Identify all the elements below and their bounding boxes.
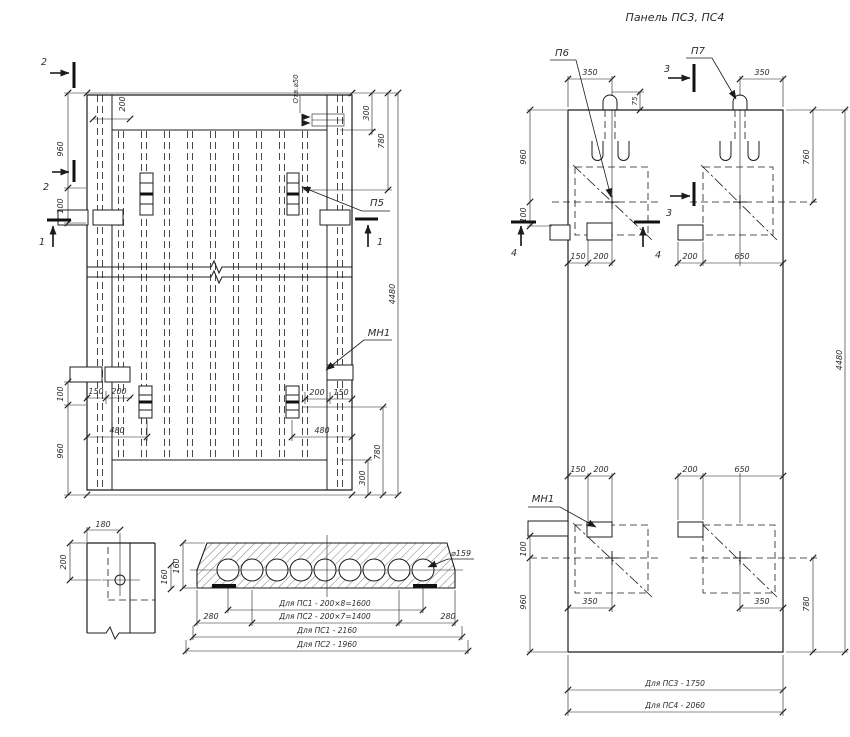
plan-view: 2 2 1 1 Отв.⌀50 П5 МН1 200 960 100 300 7… bbox=[39, 57, 401, 498]
section-mark-1-right: 1 bbox=[377, 237, 383, 248]
dim-200-top-right: 200 bbox=[682, 252, 697, 261]
plan-break-lines bbox=[87, 261, 352, 283]
plan-dimensions bbox=[64, 90, 401, 498]
dim-200-bottom-left: 200 bbox=[593, 465, 608, 474]
dim-350-bottom-right: 350 bbox=[754, 597, 769, 606]
hole-callout: Отв.⌀50 bbox=[292, 74, 300, 104]
drawing-canvas: 2 2 1 1 Отв.⌀50 П5 МН1 200 960 100 300 7… bbox=[0, 0, 850, 737]
dim-row-ps1-voids: Для ПС1 - 200×8=1600 bbox=[278, 599, 371, 608]
dim-row-ps1-length: Для ПС1 - 2160 bbox=[296, 626, 357, 635]
dim-780-top-right: 780 bbox=[377, 133, 386, 148]
section-mark-2-top: 2 bbox=[41, 57, 47, 68]
bearing-pad-left bbox=[212, 584, 236, 588]
callout-p5: П5 bbox=[370, 198, 384, 209]
dim-150-bottom-left: 150 bbox=[570, 465, 585, 474]
bearing-pad-right bbox=[413, 584, 437, 588]
dim-200-bottom-right: 200 bbox=[682, 465, 697, 474]
section-mark-4-left: 4 bbox=[511, 248, 517, 259]
callout-p7: П7 bbox=[691, 46, 706, 57]
dim-200-bottom-left: 200 bbox=[111, 387, 126, 396]
corner-outline bbox=[87, 533, 155, 639]
void-diameter-label: ⌀159 bbox=[451, 549, 471, 558]
anchor-zones bbox=[530, 165, 817, 597]
lifting-loops bbox=[592, 95, 759, 161]
callout-p6: П6 bbox=[555, 48, 569, 59]
dim-960-top-left-col: 960 bbox=[519, 149, 528, 164]
dim-350-bottom-left: 350 bbox=[582, 597, 597, 606]
dim-180-corner: 180 bbox=[95, 520, 110, 529]
dim-280-right: 280 bbox=[440, 612, 455, 621]
dim-650-top-right: 650 bbox=[734, 252, 749, 261]
drawing-title: Панель ПС3, ПС4 bbox=[626, 11, 725, 24]
elevation-plates bbox=[528, 223, 703, 537]
dim-350-top-right: 350 bbox=[754, 68, 769, 77]
section-mark-2-side: 2 bbox=[43, 182, 49, 193]
dim-960-bottom-left-col: 960 bbox=[519, 594, 528, 609]
dim-4480-plan: 4480 bbox=[388, 284, 397, 304]
dim-4480-elevation: 4480 bbox=[835, 350, 844, 370]
plan-anchor-inserts bbox=[139, 173, 299, 418]
dim-200-top-left: 200 bbox=[593, 252, 608, 261]
dim-280-left: 280 bbox=[203, 612, 218, 621]
dim-160-section: 160 bbox=[172, 558, 181, 573]
corner-section-view: 180 200 160 bbox=[59, 520, 174, 639]
dim-960-bottom-left-col: 960 bbox=[56, 443, 65, 458]
elevation-view: Панель ПС3, ПС4 bbox=[511, 11, 848, 716]
section-mark-3-top: 3 bbox=[664, 64, 670, 75]
dim-200-bottom-right: 200 bbox=[309, 388, 324, 397]
dim-200-top: 200 bbox=[118, 96, 127, 111]
dim-75-loop: 75 bbox=[631, 96, 639, 105]
dim-150-top-left: 150 bbox=[570, 252, 585, 261]
dim-row-ps4-width: Для ПС4 - 2060 bbox=[644, 701, 705, 710]
dim-200-corner: 200 bbox=[59, 554, 68, 569]
callout-mn1-elevation: МН1 bbox=[532, 494, 555, 505]
dim-150-bottom-right: 150 bbox=[333, 388, 348, 397]
plan-void-lines bbox=[98, 95, 343, 490]
dim-100-top-left-col: 100 bbox=[519, 207, 528, 222]
dim-300-bottom-right: 300 bbox=[358, 470, 367, 485]
drawing-sheet: 2 2 1 1 Отв.⌀50 П5 МН1 200 960 100 300 7… bbox=[0, 0, 850, 737]
dim-780-right: 780 bbox=[802, 596, 811, 611]
section-mark-3-mid: 3 bbox=[666, 208, 672, 219]
dim-row-ps3-width: Для ПС3 - 1750 bbox=[644, 679, 705, 688]
dim-row-ps2-length: Для ПС2 - 1960 bbox=[296, 640, 357, 649]
elevation-panel-outline bbox=[568, 110, 783, 652]
dim-row-ps2-voids: Для ПС2 - 200×7=1400 bbox=[278, 612, 371, 621]
callout-mn1-plan: МН1 bbox=[368, 328, 391, 339]
dim-150-bottom-left: 150 bbox=[88, 387, 103, 396]
dim-960-top-left: 960 bbox=[56, 141, 65, 156]
dim-780-bottom-right: 780 bbox=[373, 444, 382, 459]
dim-100-bottom-left-col: 100 bbox=[519, 541, 528, 556]
dim-760-right: 760 bbox=[802, 149, 811, 164]
section-mark-4-right: 4 bbox=[655, 250, 661, 261]
dim-100-bottom-left-col: 100 bbox=[56, 386, 65, 401]
plan-panel-outline bbox=[87, 95, 352, 490]
cross-section-view: ⌀159 160 280 280 Для ПС1 - 200×8=1600 Дл… bbox=[172, 535, 474, 654]
dim-480-bottom-right: 480 bbox=[314, 426, 329, 435]
dim-350-top-left: 350 bbox=[582, 68, 597, 77]
dim-480-bottom-left: 480 bbox=[109, 426, 124, 435]
dim-100-top-left: 100 bbox=[56, 198, 65, 213]
dim-300-top-right: 300 bbox=[362, 105, 371, 120]
section-mark-1-left: 1 bbox=[39, 237, 45, 248]
dim-650-bottom-right: 650 bbox=[734, 465, 749, 474]
dim-160-corner: 160 bbox=[160, 569, 169, 584]
elevation-callouts bbox=[528, 58, 736, 527]
